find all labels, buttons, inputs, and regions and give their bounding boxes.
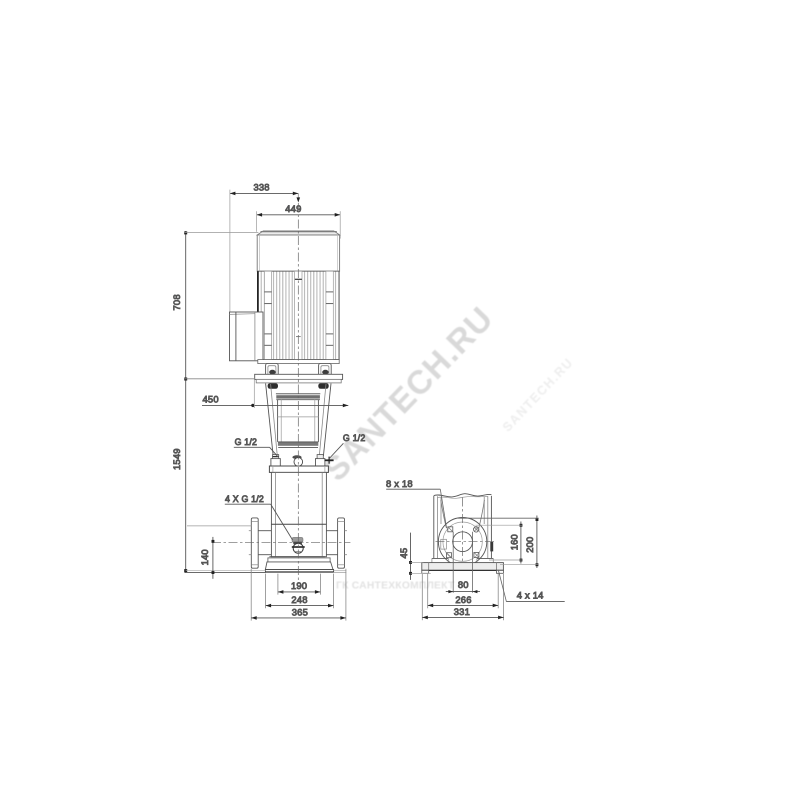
svg-text:248: 248 (291, 594, 307, 605)
svg-text:4 x 14: 4 x 14 (517, 589, 544, 600)
svg-text:200: 200 (524, 537, 535, 553)
svg-text:160: 160 (509, 534, 520, 550)
svg-text:4 X G 1/2: 4 X G 1/2 (225, 494, 264, 504)
svg-text:G 1/2: G 1/2 (343, 433, 366, 443)
svg-text:266: 266 (455, 594, 471, 605)
svg-text:708: 708 (171, 294, 182, 310)
svg-text:G 1/2: G 1/2 (235, 437, 258, 447)
svg-text:80: 80 (458, 579, 469, 590)
svg-text:365: 365 (292, 606, 308, 617)
svg-text:450: 450 (203, 394, 219, 405)
svg-text:190: 190 (291, 580, 307, 591)
svg-text:140: 140 (199, 549, 210, 565)
svg-text:449: 449 (285, 203, 301, 214)
svg-text:8 x 18: 8 x 18 (386, 478, 413, 489)
svg-text:331: 331 (454, 606, 470, 617)
svg-text:ГК САНТЕХКОМПЛЕКТ: ГК САНТЕХКОМПЛЕКТ (336, 581, 455, 592)
svg-text:1549: 1549 (171, 448, 182, 470)
svg-text:338: 338 (253, 181, 269, 192)
svg-text:45: 45 (398, 548, 409, 559)
